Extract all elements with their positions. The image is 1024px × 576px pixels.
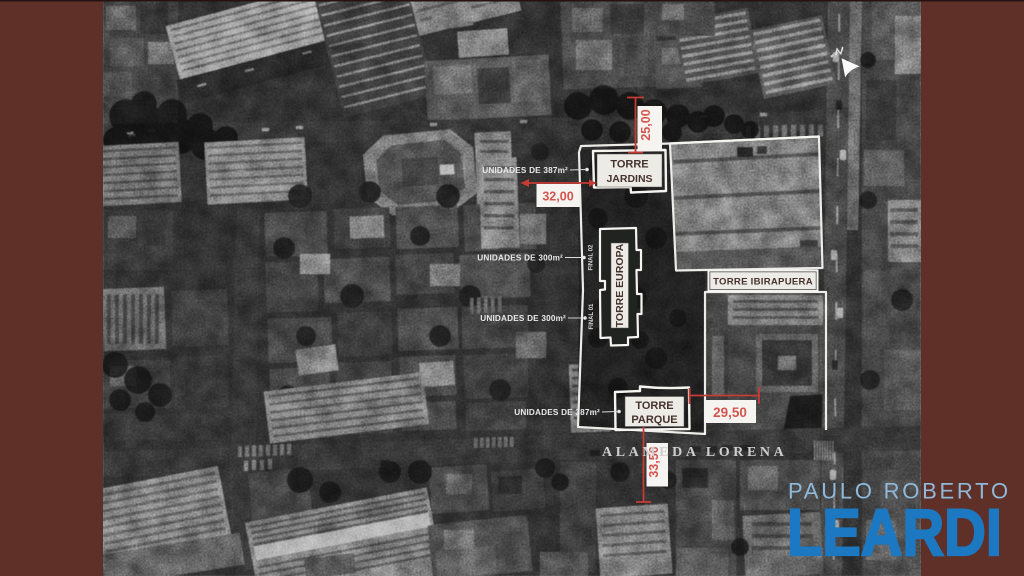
svg-text:PARQUE: PARQUE: [631, 414, 677, 426]
svg-text:JARDINS: JARDINS: [606, 173, 652, 185]
svg-text:TORRE EUROPA: TORRE EUROPA: [614, 243, 626, 327]
svg-text:UNIDADES DE 300m²: UNIDADES DE 300m²: [480, 314, 566, 323]
svg-text:TORRE: TORRE: [610, 159, 648, 171]
svg-text:32,00: 32,00: [542, 190, 573, 204]
svg-text:25,00: 25,00: [639, 109, 653, 140]
svg-text:UNIDADES DE 300m²: UNIDADES DE 300m²: [477, 254, 563, 263]
svg-text:UNIDADES DE 387m²: UNIDADES DE 387m²: [514, 408, 600, 417]
svg-text:29,50: 29,50: [713, 405, 747, 420]
svg-text:TORRE: TORRE: [635, 400, 673, 412]
svg-text:FINAL 02: FINAL 02: [589, 244, 595, 271]
svg-text:TORRE IBIRAPUERA: TORRE IBIRAPUERA: [713, 277, 813, 288]
svg-text:UNIDADES DE 387m²: UNIDADES DE 387m²: [482, 166, 568, 175]
svg-text:LEARDI: LEARDI: [787, 496, 1002, 569]
svg-text:ALAMEDA LORENA: ALAMEDA LORENA: [602, 445, 787, 460]
svg-text:FINAL 01: FINAL 01: [589, 303, 595, 330]
